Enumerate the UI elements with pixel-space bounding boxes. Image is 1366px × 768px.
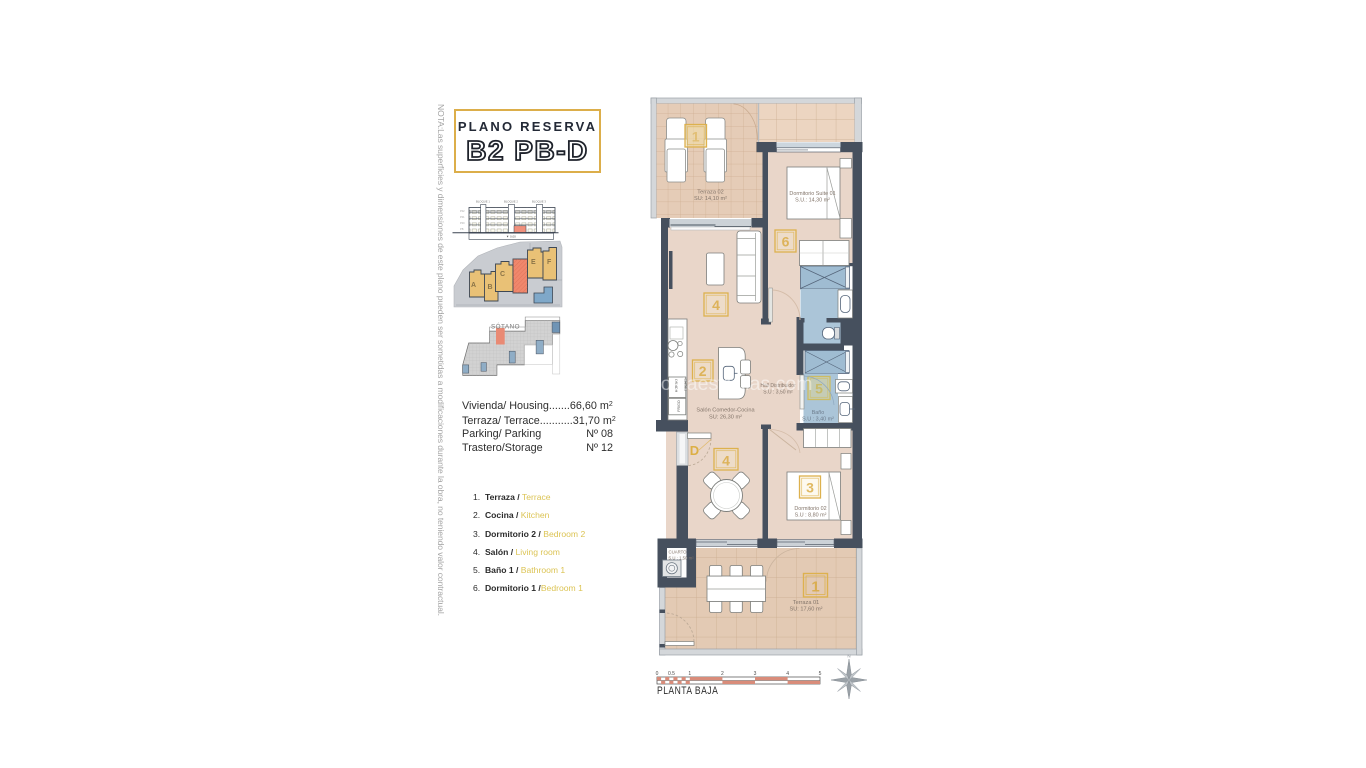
svg-text:P01: P01 (460, 215, 465, 219)
svg-text:Baño: Baño (812, 410, 825, 416)
svg-text:SU: 14,10 m²: SU: 14,10 m² (694, 196, 727, 202)
svg-text:3: 3 (754, 671, 757, 677)
svg-text:S.U : 1,50 m²: S.U : 1,50 m² (668, 555, 694, 560)
svg-text:0.5: 0.5 (668, 671, 675, 677)
svg-text:SÓTANO: SÓTANO (491, 322, 520, 331)
svg-text:BLOQUE 1: BLOQUE 1 (476, 200, 490, 204)
svg-text:SU: 26,30 m²: SU: 26,30 m² (709, 415, 742, 421)
svg-text:▼ 0,00: ▼ 0,00 (506, 235, 516, 239)
svg-text:5: 5 (819, 671, 822, 677)
svg-text:Dormitorio Suite 01: Dormitorio Suite 01 (789, 191, 835, 197)
svg-text:SU: 17,60 m²: SU: 17,60 m² (790, 607, 823, 613)
svg-text:BLOQUE 3: BLOQUE 3 (532, 200, 546, 204)
svg-text:1: 1 (688, 671, 691, 677)
svg-text:costaestrellas.com: costaestrellas.com (651, 373, 812, 395)
svg-text:C: C (500, 271, 505, 278)
svg-text:D: D (690, 443, 699, 458)
svg-text:A: A (471, 282, 476, 289)
svg-text:BLOQUE 2: BLOQUE 2 (504, 200, 518, 204)
svg-text:6: 6 (782, 234, 790, 250)
svg-text:Salón Comedor-Cocina: Salón Comedor-Cocina (696, 408, 755, 414)
svg-text:S.U.: 14,30 m²: S.U.: 14,30 m² (795, 198, 830, 204)
svg-text:4: 4 (786, 671, 789, 677)
svg-text:4: 4 (722, 453, 730, 469)
svg-text:0: 0 (656, 671, 659, 677)
svg-text:S.U : 8,80 m²: S.U : 8,80 m² (795, 513, 827, 519)
svg-text:FRIGO: FRIGO (677, 400, 681, 412)
svg-text:CUARTO: CUARTO (669, 550, 688, 555)
svg-text:1: 1 (811, 579, 819, 596)
svg-text:S.U : 3,40 m²: S.U : 3,40 m² (802, 417, 834, 423)
svg-text:N: N (847, 654, 850, 659)
svg-text:4: 4 (712, 297, 720, 313)
svg-text:P00: P00 (460, 221, 465, 225)
svg-text:Dormitorio 02: Dormitorio 02 (794, 506, 826, 512)
svg-text:Terraza 01: Terraza 01 (793, 600, 819, 606)
svg-text:1: 1 (692, 129, 700, 145)
svg-text:E: E (531, 259, 536, 266)
svg-text:B: B (488, 284, 493, 291)
svg-text:3: 3 (806, 480, 814, 496)
svg-text:PB: PB (460, 227, 464, 231)
svg-text:P02: P02 (460, 209, 465, 213)
svg-text:2: 2 (721, 671, 724, 677)
svg-text:F: F (547, 259, 552, 266)
svg-text:Terraza 02: Terraza 02 (697, 190, 723, 196)
